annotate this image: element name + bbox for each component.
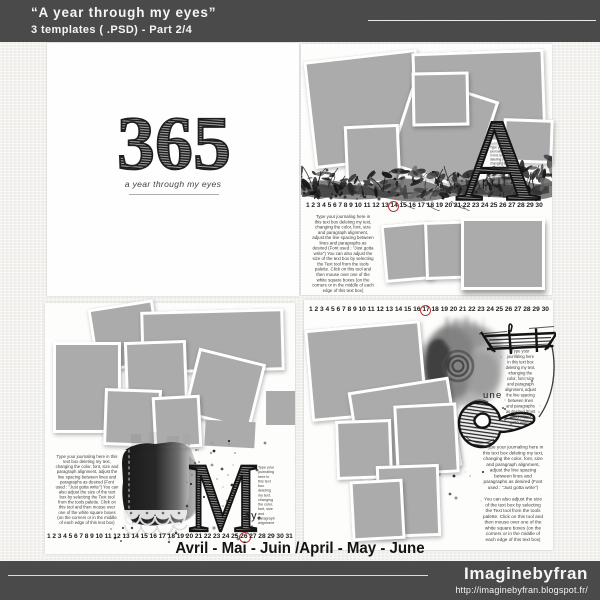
svg-text:M: M [187, 451, 258, 543]
svg-text:365: 365 [117, 102, 231, 186]
